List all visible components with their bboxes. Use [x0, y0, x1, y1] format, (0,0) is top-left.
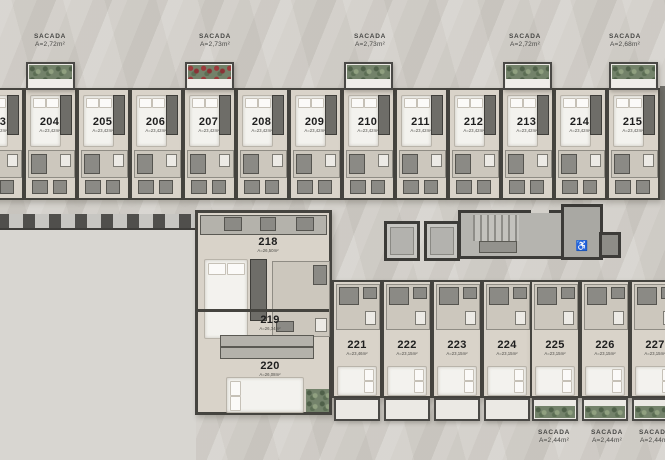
bathroom-icon [28, 150, 75, 178]
entry-cabinet-icon [138, 180, 154, 194]
entry-cabinet-icon [350, 180, 366, 194]
entry-cabinet-icon [456, 180, 472, 194]
entry-cabinet-icon [32, 180, 48, 194]
open-area [0, 229, 196, 460]
pillow-icon [99, 98, 112, 108]
plants-decor [506, 65, 549, 79]
sink-icon [561, 287, 575, 299]
toilet-icon [315, 318, 327, 332]
unit-206: 206A=23,42m² [130, 88, 183, 200]
entry-cabinet-icon [244, 180, 260, 194]
shower-icon [537, 287, 557, 305]
shower-icon [296, 154, 312, 174]
pillow-icon [208, 263, 226, 275]
stairwell [458, 210, 564, 259]
pillow-icon [612, 381, 622, 393]
shower-icon [389, 287, 409, 305]
pillow-icon [562, 381, 572, 393]
stove-icon [224, 217, 242, 231]
bed-icon [635, 366, 665, 396]
toilet-icon [465, 311, 476, 325]
entry-cabinet-icon [265, 180, 279, 194]
sacada-label-name: SACADA [583, 33, 665, 41]
pillow-icon [576, 98, 589, 108]
toilet-icon [515, 311, 526, 325]
sacada-label-name: SACADA [328, 33, 412, 41]
unit-number: 219 [230, 315, 310, 326]
shower-icon [489, 287, 509, 305]
pillow-icon [258, 98, 271, 108]
pillow-icon [245, 98, 258, 108]
entry-cabinet-icon [583, 180, 597, 194]
pillow-icon [417, 98, 430, 108]
bed-220 [226, 377, 304, 413]
bed-icon [437, 366, 477, 396]
shower-icon [137, 154, 153, 174]
unit-207: 207A=23,42m² [183, 88, 236, 200]
sacada-label: SACADAA=2,72m² [483, 33, 567, 49]
plants-decor [635, 406, 665, 418]
unit-number: 212 [444, 117, 504, 128]
entry-cabinet-icon [477, 180, 491, 194]
edge-wall [660, 86, 665, 200]
pillow-icon [464, 369, 474, 381]
floor-plan: 218 A=26,50m² 219 A=26,34m² 220 A=26,08m… [0, 0, 665, 460]
bathroom-icon [611, 150, 658, 178]
bathroom-icon [293, 150, 340, 178]
shower-icon [561, 154, 577, 174]
toilet-icon [484, 154, 495, 167]
unit-number: 209 [285, 117, 345, 128]
bathroom-icon [0, 150, 22, 178]
elevator-cab [390, 227, 414, 255]
unit-208: 208A=23,42m² [236, 88, 289, 200]
toilet-icon [537, 154, 548, 167]
unit-area: A=23,42m² [28, 129, 71, 133]
unit-area: A=23,42m² [134, 129, 177, 133]
toilet-icon [60, 154, 71, 167]
unit-area: A=23,46m² [335, 352, 378, 356]
sacada-label-area: A=2,44m² [613, 437, 665, 445]
pillow-icon [514, 381, 524, 393]
pillow-icon [414, 369, 424, 381]
unit-214: 214A=23,42m² [554, 88, 607, 200]
toilet-icon [613, 311, 624, 325]
sacada-label-name: SACADA [8, 33, 92, 41]
entry-cabinet-icon [562, 180, 578, 194]
shower-icon [614, 154, 630, 174]
unit-225: 225A=23,15m² [530, 280, 580, 398]
unit-area: A=23,42m² [399, 129, 442, 133]
pillow-icon [364, 369, 374, 381]
toilet-icon [643, 154, 654, 167]
bathroom-icon [81, 150, 128, 178]
pillow-icon [470, 98, 483, 108]
shower-icon [31, 154, 47, 174]
bathroom-icon [336, 284, 380, 330]
unit-227: 227A=23,15m² [630, 280, 665, 398]
sink-icon [463, 287, 477, 299]
pillow-icon [514, 369, 524, 381]
balcony-top [26, 62, 75, 90]
unit-224: 224A=23,15m² [482, 280, 532, 398]
shower-icon [190, 154, 206, 174]
pillow-icon [46, 98, 59, 108]
bed-icon [487, 366, 527, 396]
pillow-icon [230, 381, 241, 396]
plants-decor [347, 65, 390, 79]
sacada-label: SACADAA=2,73m² [328, 33, 412, 49]
pillow-icon [139, 98, 152, 108]
unit-area: A=23,15m² [533, 352, 576, 356]
entry-cabinet-icon [53, 180, 67, 194]
unit-block-218-220: 218 A=26,50m² 219 A=26,34m² 220 A=26,08m… [195, 210, 332, 415]
balcony-bottom [434, 398, 480, 421]
toilet-icon [7, 154, 18, 167]
unit-221: 221A=23,46m² [332, 280, 382, 398]
unit-area: A=23,42m² [81, 129, 124, 133]
entry-cabinet-icon [509, 180, 525, 194]
unit-209: 209A=23,42m² [289, 88, 342, 200]
shower-icon [455, 154, 471, 174]
unit-number: 220 [230, 361, 310, 372]
unit-area: A=23,42m² [558, 129, 601, 133]
shower-icon [587, 287, 607, 305]
toilet-icon [113, 154, 124, 167]
balcony-floor [29, 79, 72, 87]
entry-cabinet-icon [0, 180, 14, 194]
unit-number: 207 [179, 117, 239, 128]
balcony-bottom [632, 398, 665, 421]
bathroom-icon [452, 150, 499, 178]
elevator-1 [384, 221, 420, 261]
balcony-top [609, 62, 658, 90]
sink-icon [661, 287, 665, 299]
elevator-cab [430, 227, 454, 255]
toilet-icon [272, 154, 283, 167]
sacada-label: SACADAA=2,72m² [8, 33, 92, 49]
bed-icon [387, 366, 427, 396]
bed-icon [585, 366, 625, 396]
shower-icon [339, 287, 359, 305]
unit-210: 210A=23,42m² [342, 88, 395, 200]
sacada-label-area: A=2,73m² [328, 41, 412, 49]
unit-area: A=23,42m² [187, 129, 230, 133]
toilet-icon [563, 311, 574, 325]
sink-icon [413, 287, 427, 299]
kitchen-counter-219 [220, 335, 314, 347]
balcony-bottom [532, 398, 578, 421]
unit-number: 206 [126, 117, 186, 128]
unit-area: A=23,42m² [0, 129, 18, 133]
pillow-icon [364, 381, 374, 393]
shower-icon [84, 154, 100, 174]
pillow-icon [414, 381, 424, 393]
stair-door-gap [531, 210, 549, 213]
pillow-icon [523, 98, 536, 108]
fridge-icon [296, 217, 314, 231]
unit-211: 211A=23,42m² [395, 88, 448, 200]
shower-icon [439, 287, 459, 305]
entry-cabinet-icon [318, 180, 332, 194]
sacada-label-area: A=2,68m² [583, 41, 665, 49]
pillow-icon [0, 98, 6, 108]
sink-icon [611, 287, 625, 299]
sacada-label-area: A=2,72m² [483, 41, 567, 49]
sacada-label-area: A=2,73m² [173, 41, 257, 49]
entry-cabinet-icon [424, 180, 438, 194]
bathroom-icon [558, 150, 605, 178]
pillow-icon [562, 369, 572, 381]
corridor-window-wall [0, 214, 197, 230]
entry-cabinet-icon [191, 180, 207, 194]
unit-number: 211 [391, 117, 451, 128]
pillow-icon [33, 98, 46, 108]
unit-223: 223A=23,15m² [432, 280, 482, 398]
sink-icon [363, 287, 377, 299]
entry-cabinet-icon [530, 180, 544, 194]
unit-number: 213 [497, 117, 557, 128]
bathroom-icon [240, 150, 287, 178]
unit-area: A=23,42m² [452, 129, 495, 133]
plants-decor [535, 406, 575, 418]
plants-decor [306, 389, 329, 412]
toilet-icon [219, 154, 230, 167]
plants-decor [188, 65, 231, 79]
elevator-2 [424, 221, 460, 261]
bathroom-icon [399, 150, 446, 178]
unit-number: 204 [20, 117, 80, 128]
toilet-icon [325, 154, 336, 167]
entry-cabinet-icon [297, 180, 313, 194]
shower-icon [349, 154, 365, 174]
unit-area: A=23,15m² [633, 352, 665, 356]
unit-number: 205 [73, 117, 133, 128]
pillow-icon [230, 396, 241, 411]
pillow-icon [510, 98, 523, 108]
entry-cabinet-icon [615, 180, 631, 194]
entry-cabinet-icon [212, 180, 226, 194]
toilet-icon [431, 154, 442, 167]
bathroom-icon [505, 150, 552, 178]
balcony-top [344, 62, 393, 90]
shower-icon [243, 154, 259, 174]
unit-222: 222A=23,15m² [382, 280, 432, 398]
balcony-floor [188, 79, 231, 87]
pillow-icon [298, 98, 311, 108]
unit-215: 215A=23,42m² [607, 88, 660, 200]
balcony-bottom [384, 398, 430, 421]
bed-icon [337, 366, 377, 396]
pillow-icon [311, 98, 324, 108]
pillow-icon [612, 369, 622, 381]
wheelchair-icon: ♿ [564, 241, 600, 253]
shower-icon [508, 154, 524, 174]
unit-number: 208 [232, 117, 292, 128]
bed-icon [535, 366, 575, 396]
shower-icon [637, 287, 657, 305]
balcony-bottom [334, 398, 380, 421]
unit-area: A=23,15m² [485, 352, 528, 356]
unit-area: A=26,34m² [241, 327, 299, 331]
bathroom-icon [346, 150, 393, 178]
bathroom-icon [486, 284, 530, 330]
plants-decor [585, 406, 625, 418]
shower-icon [402, 154, 418, 174]
sacada-label: SACADAA=2,44m² [613, 429, 665, 445]
unit-area: A=23,42m² [611, 129, 654, 133]
unit-area: A=23,15m² [435, 352, 478, 356]
unit-area: A=26,50m² [239, 249, 297, 253]
bathroom-icon [436, 284, 480, 330]
sacada-label: SACADAA=2,73m² [173, 33, 257, 49]
entry-cabinet-icon [85, 180, 101, 194]
unit-212: 212A=23,42m² [448, 88, 501, 200]
bathroom-icon [584, 284, 628, 330]
pillow-icon [563, 98, 576, 108]
entry-cabinet-icon [159, 180, 173, 194]
unit-205: 205A=23,42m² [77, 88, 130, 200]
sacada-label-name: SACADA [173, 33, 257, 41]
unit-number: 214 [550, 117, 610, 128]
entry-cabinet-icon [371, 180, 385, 194]
bathroom-icon [187, 150, 234, 178]
toilet-icon [166, 154, 177, 167]
sacada-label: SACADAA=2,68m² [583, 33, 665, 49]
pillow-icon [205, 98, 218, 108]
toilet-icon [415, 311, 426, 325]
wall-divider [198, 309, 329, 312]
shower-icon [313, 265, 327, 285]
unit-number: 210 [338, 117, 398, 128]
entry-cabinet-icon [106, 180, 120, 194]
sink-icon [260, 217, 276, 231]
unit-number: 215 [603, 117, 663, 128]
kitchen-counter-219b [220, 347, 314, 359]
pillow-icon [364, 98, 377, 108]
bathroom-icon [386, 284, 430, 330]
sacada-label-name: SACADA [613, 429, 665, 437]
sacada-label-area: A=2,72m² [8, 41, 92, 49]
unit-number: 227 [625, 340, 665, 351]
service-shaft [599, 232, 621, 258]
unit-area: A=23,42m² [240, 129, 283, 133]
toilet-icon [378, 154, 389, 167]
pillow-icon [457, 98, 470, 108]
pillow-icon [616, 98, 629, 108]
accessible-wc: ♿ [561, 204, 603, 260]
unit-area: A=23,15m² [385, 352, 428, 356]
pillow-icon [351, 98, 364, 108]
stair-landing [479, 241, 517, 253]
plants-decor [612, 65, 655, 79]
plants-decor [29, 65, 72, 79]
balcony-floor [612, 79, 655, 87]
unit-area: A=23,15m² [583, 352, 626, 356]
unit-area: A=23,42m² [293, 129, 336, 133]
balcony-top [185, 62, 234, 90]
entry-cabinet-icon [636, 180, 650, 194]
unit-area: A=23,42m² [346, 129, 389, 133]
pillow-icon [629, 98, 642, 108]
unit-number: 218 [228, 237, 308, 248]
entry-cabinet-icon [403, 180, 419, 194]
unit-226: 226A=23,15m² [580, 280, 630, 398]
unit-213: 213A=23,42m² [501, 88, 554, 200]
balcony-floor [347, 79, 390, 87]
bathroom-icon [134, 150, 181, 178]
balcony-bottom [582, 398, 628, 421]
pillow-icon [464, 381, 474, 393]
unit-204: 204A=23,42m² [24, 88, 77, 200]
stair-treads [473, 215, 519, 241]
toilet-icon [590, 154, 601, 167]
sacada-label-name: SACADA [483, 33, 567, 41]
pillow-icon [192, 98, 205, 108]
pillow-icon [404, 98, 417, 108]
balcony-top [503, 62, 552, 90]
bathroom-icon [634, 284, 665, 330]
toilet-icon [365, 311, 376, 325]
sink-icon [513, 287, 527, 299]
pillow-icon [86, 98, 99, 108]
unit-203: 203A=23,42m² [0, 88, 24, 200]
unit-area: A=23,42m² [505, 129, 548, 133]
pillow-icon [152, 98, 165, 108]
balcony-bottom [484, 398, 530, 421]
bathroom-icon [534, 284, 578, 330]
pillow-icon [227, 263, 245, 275]
balcony-floor [506, 79, 549, 87]
unit-area: A=26,08m² [241, 373, 299, 377]
